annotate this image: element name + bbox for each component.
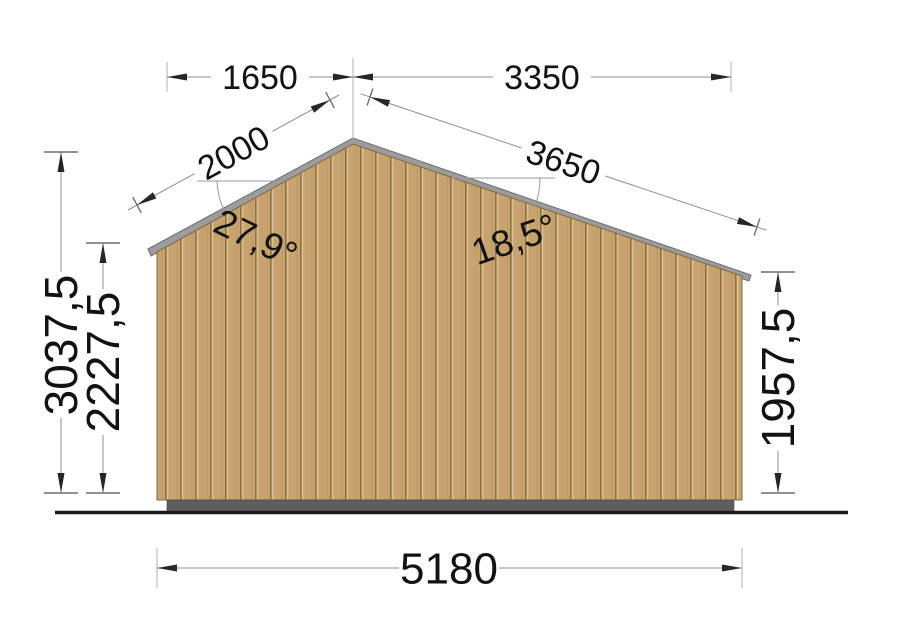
arrow-right-icon (722, 565, 742, 572)
arrow-down-icon (100, 473, 107, 493)
arrow-down-icon (58, 473, 65, 493)
dim-top-left-label: 1650 (222, 59, 298, 97)
arrow-left-icon (353, 74, 373, 81)
foundation (167, 500, 734, 511)
arrow-left-icon (167, 74, 187, 81)
dim-overall-width-label: 5180 (400, 544, 498, 593)
arrow-down-icon (775, 473, 782, 493)
arrow-downleft-icon (137, 192, 156, 205)
dim-left-slope-label: 2000 (192, 119, 277, 189)
dim-left-wall-height-label: 2227,5 (77, 292, 129, 433)
dim-top-right-label: 3350 (504, 59, 580, 97)
arrow-downright-icon (737, 217, 757, 227)
elevation-drawing: 1650 3350 2000 3650 27,9° (0, 0, 900, 636)
dim-overall-width: 5180 (157, 544, 742, 593)
building (55, 138, 848, 513)
arrow-right-icon (333, 74, 353, 81)
arrow-up-icon (58, 152, 65, 172)
arrow-upleft-icon (370, 97, 390, 107)
dim-right-wall-height-label: 1957,5 (752, 308, 804, 449)
arrow-up-icon (100, 243, 107, 263)
arrow-up-icon (775, 272, 782, 292)
arrow-left-icon (157, 565, 177, 572)
dim-right-slope-label: 3650 (521, 133, 605, 193)
dim-right-wall-height: 1957,5 (752, 272, 804, 493)
arrow-right-icon (711, 74, 731, 81)
arrow-upright-icon (311, 100, 330, 113)
